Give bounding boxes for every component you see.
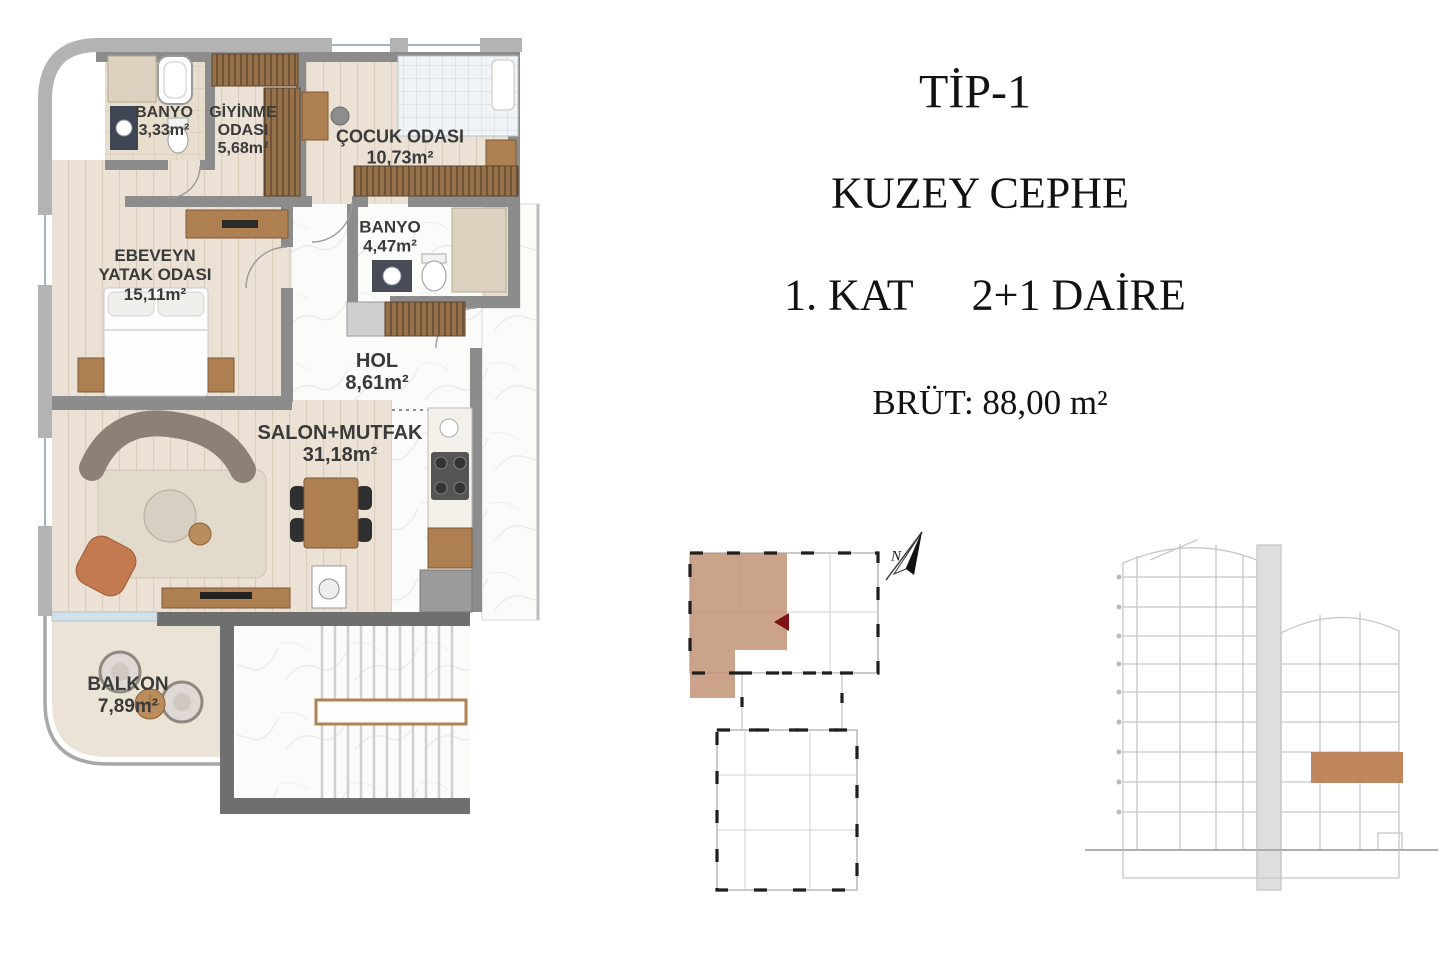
room-name: GİYİNME ODASI bbox=[209, 104, 277, 139]
room-name: BANYO bbox=[359, 218, 420, 237]
facade-title: KUZEY CEPHE bbox=[831, 168, 1129, 219]
room-name: ÇOCUK ODASI bbox=[336, 127, 464, 147]
room-label-living-kitchen: SALON+MUTFAK 31,18m² bbox=[258, 399, 423, 489]
room-area: 4,47m² bbox=[359, 237, 420, 256]
key-plan bbox=[690, 532, 922, 890]
room-area: 10,73m² bbox=[336, 147, 464, 167]
floor-and-unit-title: 1. KAT 2+1 DAİRE bbox=[784, 270, 1186, 321]
section-right-floor-lines bbox=[1281, 664, 1399, 812]
room-label-balcony: BALKON 7,89m² bbox=[87, 653, 168, 739]
building-section bbox=[1085, 540, 1438, 890]
floor-plan-sheet: { "title_block": { "type_label": "TİP-1"… bbox=[0, 0, 1440, 960]
section-core-shaft bbox=[1257, 545, 1281, 890]
room-label-master-bedroom: EBEVEYN YATAK ODASI 15,11m² bbox=[98, 227, 211, 323]
stair-landing-rail bbox=[316, 700, 466, 724]
gross-area-title: BRÜT: 88,00 m² bbox=[872, 383, 1107, 423]
balcony-window-band bbox=[52, 612, 157, 621]
room-label-kidsroom: ÇOCUK ODASI 10,73m² bbox=[336, 106, 464, 187]
room-name: BANYO bbox=[135, 104, 193, 121]
room-name: HOL bbox=[356, 349, 398, 371]
highlighted-floor-slab bbox=[1311, 752, 1403, 783]
room-name: BALKON bbox=[87, 675, 168, 696]
room-area: 7,89m² bbox=[87, 696, 168, 717]
room-area: 3,33m² bbox=[135, 122, 193, 140]
room-area: 8,61m² bbox=[345, 372, 408, 395]
room-name: EBEVEYN YATAK ODASI bbox=[98, 246, 211, 284]
room-label-dressing: GİYİNME ODASI 5,68m² bbox=[209, 86, 277, 176]
floor-number: 1. KAT bbox=[784, 270, 914, 321]
room-label-bathroom2: BANYO 4,47m² bbox=[359, 199, 420, 276]
unit-layout: 2+1 DAİRE bbox=[972, 270, 1186, 321]
room-area: 31,18m² bbox=[258, 444, 423, 467]
room-area: 15,11m² bbox=[98, 285, 211, 304]
room-area: 5,68m² bbox=[209, 140, 277, 158]
room-name: SALON+MUTFAK bbox=[258, 421, 423, 443]
section-floor-lines bbox=[1123, 577, 1257, 812]
room-label-bathroom1: BANYO 3,33m² bbox=[135, 86, 193, 158]
north-label: N bbox=[891, 549, 901, 566]
unit-type-title: TİP-1 bbox=[919, 65, 1031, 120]
section-level-dots bbox=[1117, 575, 1122, 815]
